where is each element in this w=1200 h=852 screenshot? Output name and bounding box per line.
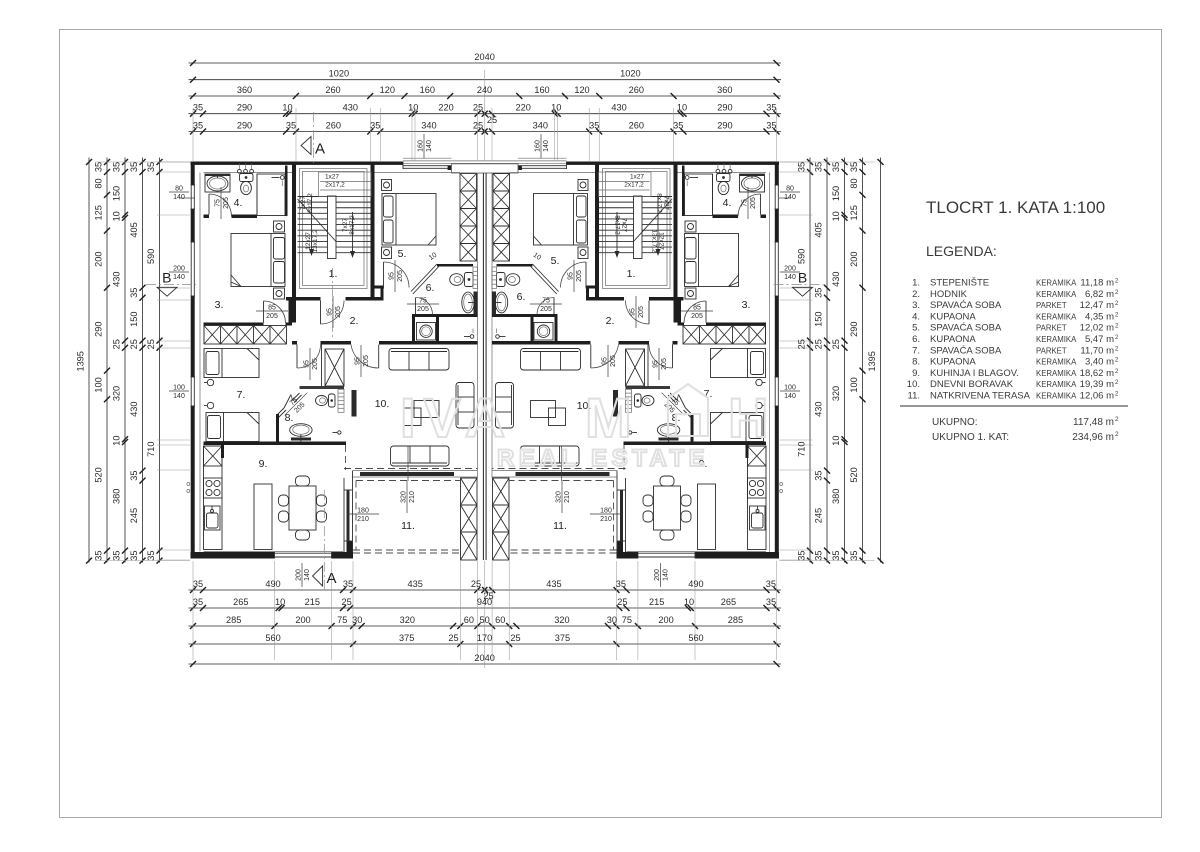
svg-text:HODNIK: HODNIK <box>930 289 968 300</box>
svg-text:95: 95 <box>653 360 660 368</box>
svg-text:M: M <box>585 386 632 449</box>
svg-text:35: 35 <box>849 550 859 560</box>
svg-text:11.: 11. <box>401 520 415 532</box>
svg-text:12x27: 12x27 <box>658 232 665 250</box>
svg-text:320: 320 <box>112 386 122 401</box>
svg-text:10.: 10. <box>907 379 920 390</box>
svg-text:B: B <box>162 270 171 286</box>
svg-text:430: 430 <box>611 103 626 113</box>
svg-text:125: 125 <box>849 205 859 220</box>
svg-text:95: 95 <box>355 357 362 365</box>
svg-text:290: 290 <box>94 322 104 337</box>
svg-text:25: 25 <box>617 597 627 607</box>
svg-text:19,39 m: 19,39 m <box>1080 379 1114 390</box>
svg-text:3.: 3. <box>215 299 224 311</box>
svg-text:35: 35 <box>193 103 203 113</box>
svg-text:320: 320 <box>831 386 841 401</box>
svg-text:25: 25 <box>129 339 139 349</box>
svg-text:95: 95 <box>568 272 575 280</box>
svg-text:205: 205 <box>266 313 278 320</box>
svg-text:710: 710 <box>797 442 807 457</box>
svg-text:205: 205 <box>540 306 552 313</box>
svg-text:6.: 6. <box>517 291 526 303</box>
svg-text:KERAMIKA: KERAMIKA <box>1036 369 1077 378</box>
svg-text:430: 430 <box>814 402 824 417</box>
svg-text:25: 25 <box>473 103 483 113</box>
svg-text:25: 25 <box>487 115 497 125</box>
svg-text:1.: 1. <box>329 268 338 280</box>
svg-text:10: 10 <box>112 211 122 221</box>
svg-text:KERAMIKA: KERAMIKA <box>1036 358 1077 367</box>
svg-text:285: 285 <box>226 615 241 625</box>
svg-text:265: 265 <box>721 597 736 607</box>
svg-text:260: 260 <box>325 85 340 95</box>
svg-text:35: 35 <box>766 121 776 131</box>
svg-text:520: 520 <box>849 467 859 482</box>
svg-text:200: 200 <box>784 266 796 273</box>
svg-text:25: 25 <box>112 339 122 349</box>
svg-text:13x17,2: 13x17,2 <box>312 229 319 253</box>
svg-text:140: 140 <box>304 569 311 581</box>
svg-text:1395: 1395 <box>76 351 86 371</box>
svg-text:205: 205 <box>312 358 319 370</box>
svg-text:35: 35 <box>146 550 156 560</box>
svg-text:7x27: 7x27 <box>300 196 307 210</box>
svg-text:4.: 4. <box>912 311 920 322</box>
svg-text:50: 50 <box>479 615 489 625</box>
svg-text:10: 10 <box>408 103 418 113</box>
svg-text:245: 245 <box>814 508 824 523</box>
svg-text:1.: 1. <box>627 268 636 280</box>
svg-text:SPAVAĆA SOBA: SPAVAĆA SOBA <box>930 300 1002 311</box>
svg-text:1x27: 1x27 <box>630 174 644 181</box>
svg-text:KERAMIKA: KERAMIKA <box>1036 392 1077 401</box>
svg-text:590: 590 <box>146 249 156 264</box>
svg-text:35: 35 <box>112 162 122 172</box>
svg-text:8x17,2: 8x17,2 <box>614 215 621 235</box>
svg-text:205: 205 <box>397 270 404 282</box>
svg-text:7x27: 7x27 <box>621 218 628 232</box>
svg-text:25: 25 <box>471 579 481 589</box>
svg-text:35: 35 <box>370 121 380 131</box>
svg-text:360: 360 <box>237 85 252 95</box>
svg-text:215: 215 <box>305 597 320 607</box>
svg-text:590: 590 <box>797 249 807 264</box>
svg-text:940: 940 <box>477 597 492 607</box>
svg-text:35: 35 <box>112 550 122 560</box>
svg-text:560: 560 <box>688 633 703 643</box>
svg-text:9.: 9. <box>912 368 920 379</box>
svg-text:220: 220 <box>516 103 531 113</box>
svg-text:5.: 5. <box>551 255 560 267</box>
svg-text:35: 35 <box>193 597 203 607</box>
svg-text:200: 200 <box>295 615 310 625</box>
svg-text:435: 435 <box>408 579 423 589</box>
svg-text:10: 10 <box>112 435 122 445</box>
svg-text:UKUPNO 1. KAT:: UKUPNO 1. KAT: <box>932 432 1009 443</box>
svg-text:430: 430 <box>831 272 841 287</box>
svg-text:PARKET: PARKET <box>1036 301 1067 310</box>
svg-text:35: 35 <box>673 121 683 131</box>
svg-text:35: 35 <box>129 550 139 560</box>
svg-text:5,47 m: 5,47 m <box>1085 334 1114 345</box>
svg-text:12x27: 12x27 <box>305 232 312 250</box>
svg-text:KERAMIKA: KERAMIKA <box>1036 290 1077 299</box>
svg-text:320: 320 <box>556 491 563 503</box>
svg-text:140: 140 <box>784 274 796 281</box>
svg-text:9.: 9. <box>259 458 268 470</box>
svg-text:140: 140 <box>784 393 796 400</box>
svg-text:200: 200 <box>173 266 185 273</box>
svg-text:75: 75 <box>622 615 632 625</box>
svg-text:PARKET: PARKET <box>1036 324 1067 333</box>
svg-text:60: 60 <box>495 615 505 625</box>
svg-text:140: 140 <box>663 569 670 581</box>
svg-text:13x17,2: 13x17,2 <box>651 229 658 253</box>
svg-text:560: 560 <box>265 633 280 643</box>
svg-text:DNEVNI BORAVAK: DNEVNI BORAVAK <box>930 379 1014 390</box>
svg-text:35: 35 <box>831 162 841 172</box>
svg-text:205: 205 <box>691 313 703 320</box>
svg-text:25: 25 <box>473 121 483 131</box>
svg-text:375: 375 <box>555 633 570 643</box>
svg-text:3.: 3. <box>912 300 920 311</box>
svg-text:120: 120 <box>574 85 589 95</box>
svg-text:375: 375 <box>399 633 414 643</box>
svg-text:A: A <box>315 141 325 158</box>
svg-text:B: B <box>798 270 807 286</box>
svg-text:290: 290 <box>717 121 732 131</box>
svg-text:150: 150 <box>129 312 139 327</box>
svg-text:360: 360 <box>717 85 732 95</box>
svg-text:80: 80 <box>786 186 794 193</box>
svg-text:11.: 11. <box>907 391 920 402</box>
svg-text:4.: 4. <box>723 197 732 209</box>
svg-text:210: 210 <box>600 516 612 523</box>
svg-text:2: 2 <box>1115 431 1119 438</box>
svg-text:140: 140 <box>173 194 185 201</box>
svg-text:10.: 10. <box>375 398 390 410</box>
svg-text:520: 520 <box>94 467 104 482</box>
svg-text:35: 35 <box>831 550 841 560</box>
svg-text:30: 30 <box>352 615 362 625</box>
svg-text:KERAMIKA: KERAMIKA <box>1036 312 1077 321</box>
svg-text:7x27: 7x27 <box>663 196 670 210</box>
svg-text:100: 100 <box>784 385 796 392</box>
svg-text:380: 380 <box>112 489 122 504</box>
svg-text:100: 100 <box>94 377 104 392</box>
svg-text:234,96 m: 234,96 m <box>1072 432 1114 443</box>
svg-text:320: 320 <box>401 491 408 503</box>
svg-text:IVA: IVA <box>400 386 513 449</box>
svg-text:12,02 m: 12,02 m <box>1080 323 1114 334</box>
svg-text:35: 35 <box>193 121 203 131</box>
svg-text:200: 200 <box>94 252 104 267</box>
svg-text:150: 150 <box>112 186 122 201</box>
svg-text:UKUPNO:: UKUPNO: <box>932 417 978 428</box>
svg-text:STEPENIŠTE: STEPENIŠTE <box>930 278 989 289</box>
svg-text:430: 430 <box>343 103 358 113</box>
svg-text:12,47 m: 12,47 m <box>1080 300 1114 311</box>
svg-text:180: 180 <box>357 508 369 515</box>
svg-text:10: 10 <box>831 211 841 221</box>
svg-text:290: 290 <box>849 322 859 337</box>
svg-text:25: 25 <box>510 633 520 643</box>
svg-text:160: 160 <box>418 140 425 152</box>
svg-text:2040: 2040 <box>474 653 494 663</box>
svg-text:95: 95 <box>630 308 637 316</box>
svg-text:25: 25 <box>814 339 824 349</box>
svg-text:100: 100 <box>849 377 859 392</box>
svg-text:260: 260 <box>326 121 341 131</box>
svg-text:11,18 m: 11,18 m <box>1080 278 1114 289</box>
svg-text:35: 35 <box>766 579 776 589</box>
svg-text:4,35 m: 4,35 m <box>1085 311 1114 322</box>
svg-text:170: 170 <box>477 633 492 643</box>
svg-text:18,62 m: 18,62 m <box>1080 368 1114 379</box>
svg-text:35: 35 <box>146 162 156 172</box>
svg-text:30: 30 <box>607 615 617 625</box>
svg-text:25: 25 <box>797 339 807 349</box>
svg-text:A: A <box>326 570 336 587</box>
svg-text:160: 160 <box>534 85 549 95</box>
svg-text:35: 35 <box>94 550 104 560</box>
svg-text:95: 95 <box>602 357 609 365</box>
svg-text:6.: 6. <box>426 282 435 294</box>
svg-text:490: 490 <box>688 579 703 589</box>
svg-text:1395: 1395 <box>867 351 877 371</box>
svg-text:25: 25 <box>831 339 841 349</box>
svg-text:210: 210 <box>409 491 416 503</box>
svg-text:35: 35 <box>814 288 824 298</box>
svg-text:85: 85 <box>693 305 701 312</box>
svg-text:KUPAONA: KUPAONA <box>930 311 976 322</box>
svg-text:35: 35 <box>766 103 776 113</box>
svg-text:205: 205 <box>750 197 757 209</box>
svg-text:2040: 2040 <box>474 52 494 62</box>
svg-text:320: 320 <box>400 615 415 625</box>
svg-text:75: 75 <box>742 199 749 207</box>
svg-text:710: 710 <box>146 442 156 457</box>
svg-text:260: 260 <box>629 85 644 95</box>
svg-text:205: 205 <box>363 355 370 367</box>
svg-text:1x27: 1x27 <box>325 174 339 181</box>
svg-text:2: 2 <box>1115 416 1119 423</box>
svg-text:8x17,2: 8x17,2 <box>307 193 314 213</box>
svg-text:35: 35 <box>129 288 139 298</box>
svg-text:430: 430 <box>129 402 139 417</box>
svg-text:35: 35 <box>797 550 807 560</box>
svg-text:265: 265 <box>233 597 248 607</box>
svg-text:REAL ESTATE: REAL ESTATE <box>497 445 709 472</box>
svg-text:435: 435 <box>546 579 561 589</box>
svg-text:290: 290 <box>237 121 252 131</box>
svg-text:NATKRIVENA TERASA: NATKRIVENA TERASA <box>930 391 1031 402</box>
svg-text:240: 240 <box>477 85 492 95</box>
svg-text:100: 100 <box>173 385 185 392</box>
svg-text:4.: 4. <box>234 197 243 209</box>
svg-text:5.: 5. <box>398 248 407 260</box>
svg-text:245: 245 <box>129 508 139 523</box>
svg-text:7x27: 7x27 <box>342 218 349 232</box>
svg-text:215: 215 <box>649 597 664 607</box>
svg-text:220: 220 <box>438 103 453 113</box>
svg-text:405: 405 <box>129 222 139 237</box>
svg-text:35: 35 <box>849 162 859 172</box>
svg-text:2.: 2. <box>606 315 615 327</box>
svg-text:117,48 m: 117,48 m <box>1073 417 1114 428</box>
svg-text:KUPAONA: KUPAONA <box>930 357 976 368</box>
svg-text:140: 140 <box>784 194 796 201</box>
svg-text:160: 160 <box>420 85 435 95</box>
svg-text:200: 200 <box>296 569 303 581</box>
svg-text:6.: 6. <box>912 334 920 345</box>
svg-text:10: 10 <box>551 103 561 113</box>
svg-text:3,40 m: 3,40 m <box>1085 357 1114 368</box>
svg-text:75: 75 <box>337 615 347 625</box>
svg-text:10: 10 <box>275 597 285 607</box>
svg-text:75: 75 <box>215 199 222 207</box>
svg-text:25: 25 <box>448 633 458 643</box>
svg-text:125: 125 <box>94 205 104 220</box>
svg-text:35: 35 <box>814 162 824 172</box>
svg-text:35: 35 <box>129 162 139 172</box>
svg-text:1020: 1020 <box>620 69 640 79</box>
svg-text:5.: 5. <box>912 323 920 334</box>
svg-text:340: 340 <box>533 121 548 131</box>
svg-text:75: 75 <box>419 298 427 305</box>
svg-text:2x17,2: 2x17,2 <box>624 182 644 189</box>
svg-text:95: 95 <box>304 360 311 368</box>
svg-text:205: 205 <box>610 355 617 367</box>
svg-text:200: 200 <box>658 615 673 625</box>
svg-text:285: 285 <box>728 615 743 625</box>
svg-text:205: 205 <box>638 306 645 318</box>
svg-text:290: 290 <box>237 103 252 113</box>
svg-text:180: 180 <box>600 508 612 515</box>
svg-text:35: 35 <box>343 579 353 589</box>
svg-text:KUHINJA I BLAGOV.: KUHINJA I BLAGOV. <box>930 368 1019 379</box>
svg-text:210: 210 <box>357 516 369 523</box>
svg-text:210: 210 <box>564 491 571 503</box>
svg-text:150: 150 <box>814 312 824 327</box>
svg-text:10: 10 <box>282 103 292 113</box>
svg-text:200: 200 <box>654 569 661 581</box>
svg-text:95: 95 <box>389 272 396 280</box>
svg-text:405: 405 <box>814 222 824 237</box>
svg-text:320: 320 <box>554 615 569 625</box>
svg-text:35: 35 <box>766 597 776 607</box>
svg-text:2x17,2: 2x17,2 <box>325 182 345 189</box>
svg-text:80: 80 <box>175 186 183 193</box>
svg-text:430: 430 <box>112 272 122 287</box>
svg-text:8.: 8. <box>912 357 920 368</box>
svg-text:205: 205 <box>661 358 668 370</box>
svg-text:6,82 m: 6,82 m <box>1085 289 1114 300</box>
svg-text:380: 380 <box>831 489 841 504</box>
svg-text:12,06 m: 12,06 m <box>1080 391 1114 402</box>
svg-text:205: 205 <box>335 306 342 318</box>
svg-text:35: 35 <box>193 579 203 589</box>
svg-text:490: 490 <box>265 579 280 589</box>
svg-text:205: 205 <box>223 197 230 209</box>
svg-text:3.: 3. <box>742 299 751 311</box>
svg-text:80: 80 <box>849 178 859 188</box>
svg-text:25: 25 <box>146 339 156 349</box>
svg-text:35: 35 <box>94 162 104 172</box>
svg-text:120: 120 <box>380 85 395 95</box>
svg-text:2.: 2. <box>350 315 359 327</box>
svg-text:1.: 1. <box>912 278 920 289</box>
svg-text:205: 205 <box>576 270 583 282</box>
svg-text:35: 35 <box>589 121 599 131</box>
svg-text:LEGENDA:: LEGENDA: <box>926 243 997 259</box>
svg-text:75: 75 <box>542 298 550 305</box>
svg-text:H: H <box>728 386 768 449</box>
svg-text:7.: 7. <box>237 389 246 401</box>
svg-text:25: 25 <box>341 597 351 607</box>
svg-text:35: 35 <box>129 470 139 480</box>
svg-text:140: 140 <box>543 140 550 152</box>
svg-text:35: 35 <box>616 579 626 589</box>
svg-text:KERAMIKA: KERAMIKA <box>1036 380 1077 389</box>
svg-text:11,70 m: 11,70 m <box>1080 345 1114 356</box>
svg-text:140: 140 <box>426 140 433 152</box>
svg-text:10: 10 <box>677 103 687 113</box>
svg-text:1020: 1020 <box>329 69 349 79</box>
svg-text:TLOCRT 1. KATA 1:100: TLOCRT 1. KATA 1:100 <box>926 198 1105 217</box>
svg-text:140: 140 <box>173 393 185 400</box>
svg-text:KERAMIKA: KERAMIKA <box>1036 335 1077 344</box>
svg-text:35: 35 <box>814 470 824 480</box>
svg-text:140: 140 <box>173 274 185 281</box>
svg-text:35: 35 <box>286 121 296 131</box>
svg-text:10: 10 <box>684 597 694 607</box>
svg-text:160: 160 <box>535 140 542 152</box>
svg-text:7.: 7. <box>912 345 920 356</box>
svg-text:2.: 2. <box>912 289 920 300</box>
svg-text:10: 10 <box>831 435 841 445</box>
svg-text:8x17,2: 8x17,2 <box>656 193 663 213</box>
svg-text:290: 290 <box>717 103 732 113</box>
svg-text:205: 205 <box>417 306 429 313</box>
svg-text:85: 85 <box>268 305 276 312</box>
svg-text:KERAMIKA: KERAMIKA <box>1036 279 1077 288</box>
svg-text:60: 60 <box>464 615 474 625</box>
svg-text:340: 340 <box>421 121 436 131</box>
svg-text:200: 200 <box>849 252 859 267</box>
svg-text:8x17,2: 8x17,2 <box>349 215 356 235</box>
svg-text:80: 80 <box>94 178 104 188</box>
svg-text:35: 35 <box>814 550 824 560</box>
svg-text:SPAVAĆA SOBA: SPAVAĆA SOBA <box>930 323 1002 334</box>
svg-text:SPAVAĆA SOBA: SPAVAĆA SOBA <box>930 345 1002 356</box>
svg-text:260: 260 <box>629 121 644 131</box>
svg-text:11.: 11. <box>553 520 567 532</box>
svg-text:150: 150 <box>831 186 841 201</box>
svg-text:PARKET: PARKET <box>1036 346 1067 355</box>
svg-text:35: 35 <box>797 162 807 172</box>
svg-text:KUPAONA: KUPAONA <box>930 334 976 345</box>
